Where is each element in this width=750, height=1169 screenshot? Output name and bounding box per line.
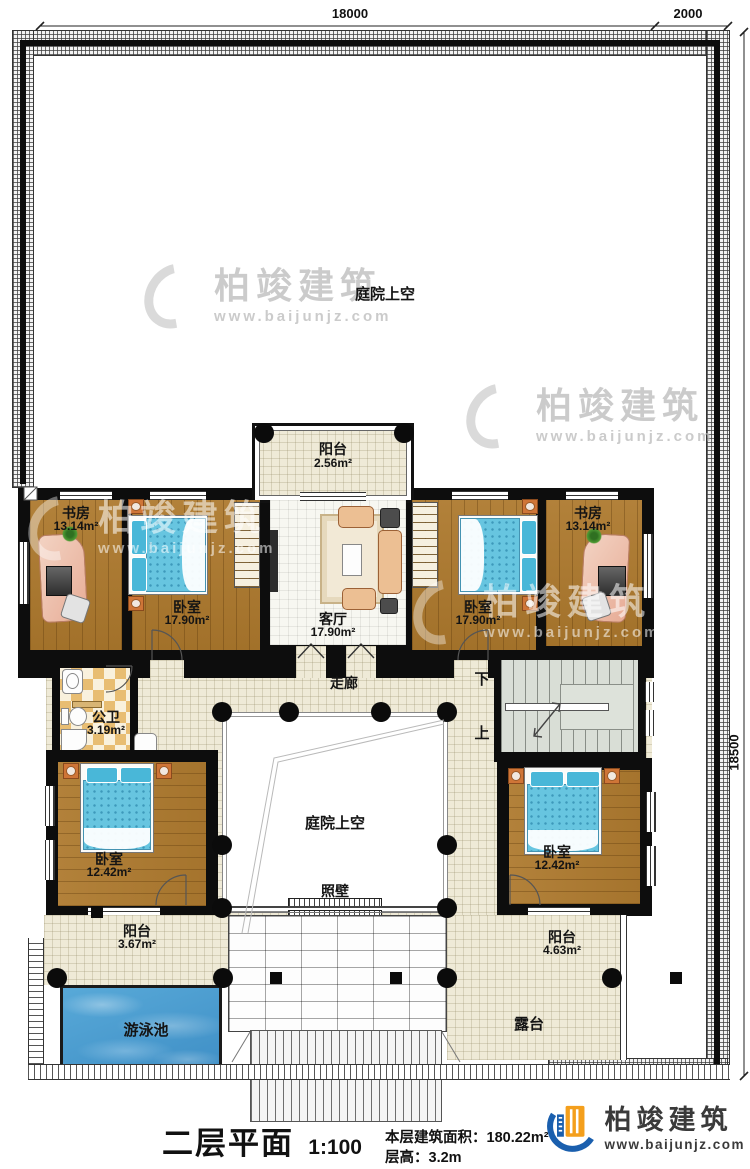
floor-area-value: 180.22m² (487, 1130, 549, 1146)
company-logo: 柏竣建筑 www.baijunjz.com (545, 1096, 745, 1162)
steps-flare-lines (232, 1032, 460, 1062)
door-swing-arcs (106, 630, 540, 905)
floor-height-label: 层高： (385, 1150, 429, 1166)
courtyard-roof-lines (242, 720, 444, 933)
double-door-chevrons (298, 644, 374, 658)
floor-area-line: 本层建筑面积：180.22m² (385, 1126, 549, 1147)
floor-height-line: 层高：3.2m (385, 1146, 462, 1167)
floor-area-label: 本层建筑面积： (385, 1130, 487, 1146)
title-block: 二层平面图 1:100 (162, 1118, 362, 1169)
company-logo-text: 柏竣建筑 www.baijunjz.com (604, 1107, 745, 1152)
stair-direction-arrow (534, 703, 560, 737)
floor-height-value: 3.2m (429, 1150, 462, 1166)
page-title: 二层平面图 (162, 1118, 298, 1169)
linework-overlay (0, 0, 750, 1169)
scale-value: 1:100 (308, 1136, 362, 1160)
company-url: www.baijunjz.com (604, 1137, 745, 1152)
floor-plan: 18000 2000 18500 柏竣建筑 www.baijunjz.com 柏… (0, 0, 750, 1169)
corner-symbol (24, 487, 37, 500)
company-name: 柏竣建筑 (604, 1107, 745, 1134)
dimension-lines (36, 22, 748, 1080)
company-logo-icon (545, 1099, 596, 1159)
